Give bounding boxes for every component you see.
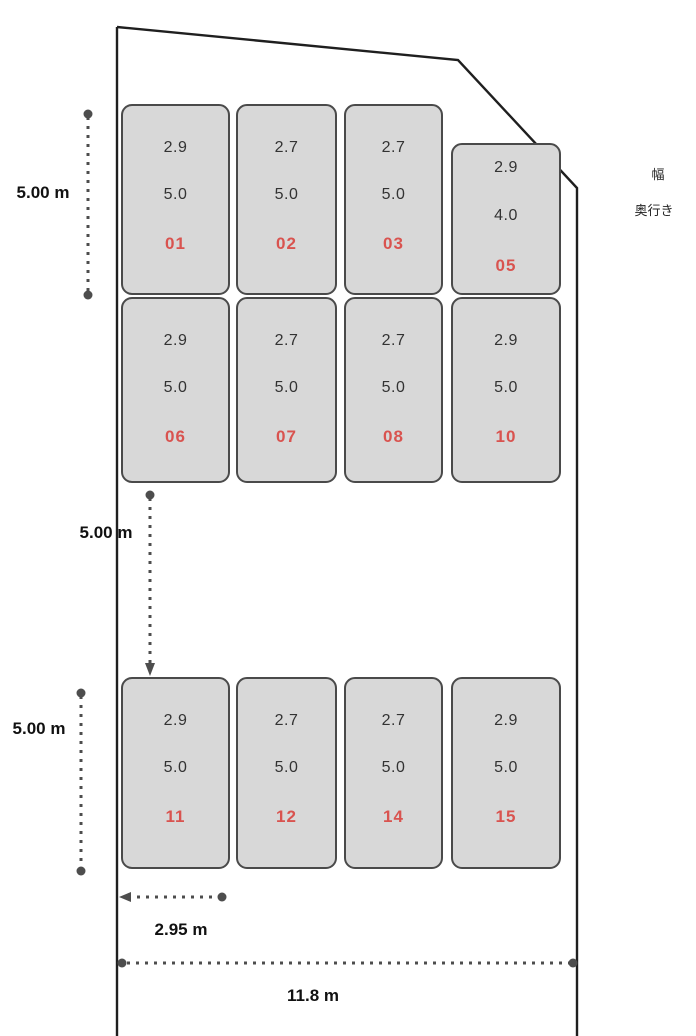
dim-line-spot-width [119, 892, 227, 902]
dim-label-aisle-height: 5.00 m [70, 523, 142, 543]
dim-endpoint-dot [569, 959, 578, 968]
spot-depth-value: 5.0 [346, 379, 441, 397]
spot-depth-value: 5.0 [346, 759, 441, 777]
dim-arrowhead-left [119, 892, 131, 902]
spot-number: 03 [346, 235, 441, 253]
spot-number: 12 [238, 808, 335, 826]
dim-endpoint-dot [77, 689, 86, 698]
spot-number: 06 [123, 428, 228, 446]
dim-arrowhead-down [145, 663, 155, 676]
spot-depth-value: 5.0 [238, 759, 335, 777]
spot-number: 05 [453, 257, 559, 275]
site-plan-canvas: 2.95.0012.75.0022.75.0032.94.0052.95.006… [0, 0, 696, 1036]
parking-spot-06: 2.95.006 [121, 297, 230, 483]
legend-width-label: 幅 [640, 164, 676, 183]
spot-width-value: 2.7 [346, 139, 441, 157]
dim-line-row3-height [77, 689, 86, 876]
dim-line-site-width [118, 959, 578, 968]
parking-spot-15: 2.95.015 [451, 677, 561, 869]
spot-width-value: 2.9 [123, 712, 228, 730]
spot-number: 14 [346, 808, 441, 826]
parking-spot-14: 2.75.014 [344, 677, 443, 869]
spot-depth-value: 5.0 [453, 759, 559, 777]
spot-depth-value: 5.0 [346, 186, 441, 204]
spot-depth-value: 5.0 [123, 186, 228, 204]
spot-width-value: 2.7 [346, 712, 441, 730]
parking-spot-03: 2.75.003 [344, 104, 443, 295]
dim-label-site-width: 11.8 m [253, 986, 373, 1006]
dim-endpoint-dot [77, 867, 86, 876]
spot-width-value: 2.7 [238, 332, 335, 350]
parking-spot-01: 2.95.001 [121, 104, 230, 295]
spot-number: 01 [123, 235, 228, 253]
spot-number: 15 [453, 808, 559, 826]
parking-spot-11: 2.95.011 [121, 677, 230, 869]
spot-depth-value: 5.0 [123, 759, 228, 777]
dim-line-row1-height [84, 110, 93, 300]
spot-depth-value: 4.0 [453, 207, 559, 225]
spot-width-value: 2.9 [123, 332, 228, 350]
spot-width-value: 2.9 [453, 332, 559, 350]
dim-endpoint-dot [84, 110, 93, 119]
spot-depth-value: 5.0 [238, 379, 335, 397]
spot-width-value: 2.9 [453, 712, 559, 730]
spot-width-value: 2.7 [238, 139, 335, 157]
spot-number: 02 [238, 235, 335, 253]
parking-spot-10: 2.95.010 [451, 297, 561, 483]
spot-width-value: 2.7 [238, 712, 335, 730]
parking-spot-12: 2.75.012 [236, 677, 337, 869]
spot-depth-value: 5.0 [123, 379, 228, 397]
legend-depth-label: 奥行き [626, 200, 682, 219]
parking-spot-08: 2.75.008 [344, 297, 443, 483]
spot-depth-value: 5.0 [238, 186, 335, 204]
dim-label-row3-height: 5.00 m [2, 719, 76, 739]
parking-spot-02: 2.75.002 [236, 104, 337, 295]
dim-label-spot-width: 2.95 m [141, 920, 221, 940]
dim-label-row1-height: 5.00 m [6, 183, 80, 203]
dim-endpoint-dot [84, 291, 93, 300]
spot-number: 11 [123, 808, 228, 826]
dim-line-aisle-height [145, 491, 155, 677]
dim-endpoint-dot [118, 959, 127, 968]
spot-width-value: 2.9 [453, 159, 559, 177]
spot-number: 07 [238, 428, 335, 446]
parking-spot-05: 2.94.005 [451, 143, 561, 295]
spot-number: 10 [453, 428, 559, 446]
parking-spot-07: 2.75.007 [236, 297, 337, 483]
spot-width-value: 2.9 [123, 139, 228, 157]
dim-endpoint-dot [146, 491, 155, 500]
dim-endpoint-dot [218, 893, 227, 902]
spot-depth-value: 5.0 [453, 379, 559, 397]
spot-width-value: 2.7 [346, 332, 441, 350]
spot-number: 08 [346, 428, 441, 446]
